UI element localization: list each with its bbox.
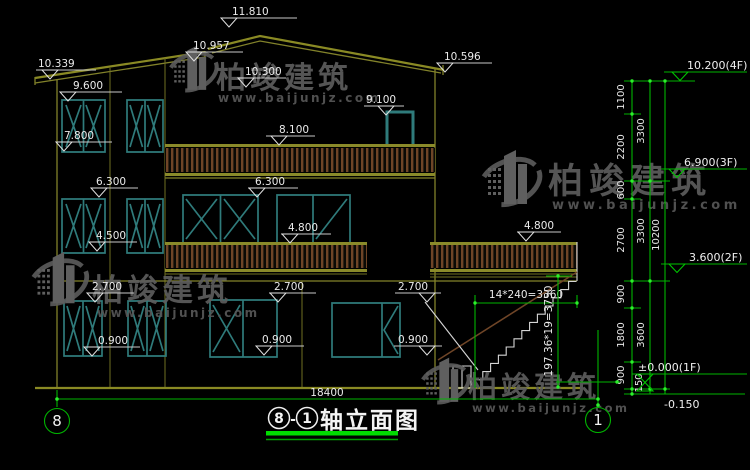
title-axis-end: 1 [302, 411, 312, 427]
dim-label: 3300 [636, 118, 647, 143]
svg-text:10.339: 10.339 [38, 58, 75, 70]
svg-text:0.900: 0.900 [98, 335, 128, 347]
balcony-railing-2f [165, 242, 367, 272]
svg-text:9.600: 9.600 [73, 80, 103, 92]
dim-label: 1100 [616, 84, 627, 109]
dim-label: 2200 [616, 134, 627, 159]
title-axis-start: 8 [274, 411, 284, 427]
stair-rise-label: 197.36*19=3750 [543, 286, 555, 377]
dim-label: 2700 [616, 227, 627, 252]
svg-text:2.700: 2.700 [398, 281, 428, 293]
svg-text:7.800: 7.800 [64, 130, 94, 142]
svg-text:4.800: 4.800 [524, 220, 554, 232]
balcony-railing-3f [165, 144, 435, 176]
dim-label: 1800 [616, 322, 627, 347]
svg-text:2.700: 2.700 [274, 281, 304, 293]
level-label: ±0.000(1F) [638, 361, 701, 374]
level-label: 6.900(3F) [684, 156, 737, 169]
title-underline-thick [266, 431, 398, 436]
svg-text:0.900: 0.900 [262, 334, 292, 346]
svg-text:6.300: 6.300 [96, 176, 126, 188]
svg-text:11.810: 11.810 [232, 6, 269, 18]
level-label: 3.600(2F) [689, 251, 742, 264]
svg-text:6.300: 6.300 [255, 176, 285, 188]
watermark-url: www.baijunjz.com [552, 198, 741, 213]
level-label: -0.150 [664, 398, 699, 411]
drawing-title-text: 轴立面图 [320, 407, 420, 434]
watermark-url: www.baijunjz.com [218, 91, 381, 105]
svg-text:10.300: 10.300 [245, 66, 282, 78]
svg-text:9.100: 9.100 [366, 94, 396, 106]
title-dash: - [290, 412, 296, 428]
svg-text:0.900: 0.900 [398, 334, 428, 346]
dim-label: 3600 [636, 322, 647, 347]
axis-number: 8 [52, 412, 62, 430]
svg-text:4.800: 4.800 [288, 222, 318, 234]
svg-text:10.596: 10.596 [444, 51, 481, 63]
dim-label: 900 [616, 284, 627, 303]
svg-text:8.100: 8.100 [279, 124, 309, 136]
dim-label: 600 [616, 180, 627, 199]
axis-number: 1 [593, 411, 603, 429]
overall-dim-label: 18400 [310, 387, 343, 399]
svg-text:10.957: 10.957 [193, 40, 230, 52]
level-label: 10.200(4F) [687, 59, 747, 72]
svg-text:4.500: 4.500 [96, 230, 126, 242]
cad-viewport: 柏竣建筑 www.baijunjz.com 柏竣建筑 www.baijunjz.… [0, 0, 750, 470]
svg-text:2.700: 2.700 [92, 281, 122, 293]
elevation-drawing-canvas[interactable]: 柏竣建筑 www.baijunjz.com 柏竣建筑 www.baijunjz.… [0, 0, 750, 470]
dim-label: 10200 [651, 219, 662, 251]
watermark-url: www.baijunjz.com [97, 306, 260, 320]
dim-label: 3300 [636, 218, 647, 243]
watermark-url: www.baijunjz.com [472, 401, 629, 415]
